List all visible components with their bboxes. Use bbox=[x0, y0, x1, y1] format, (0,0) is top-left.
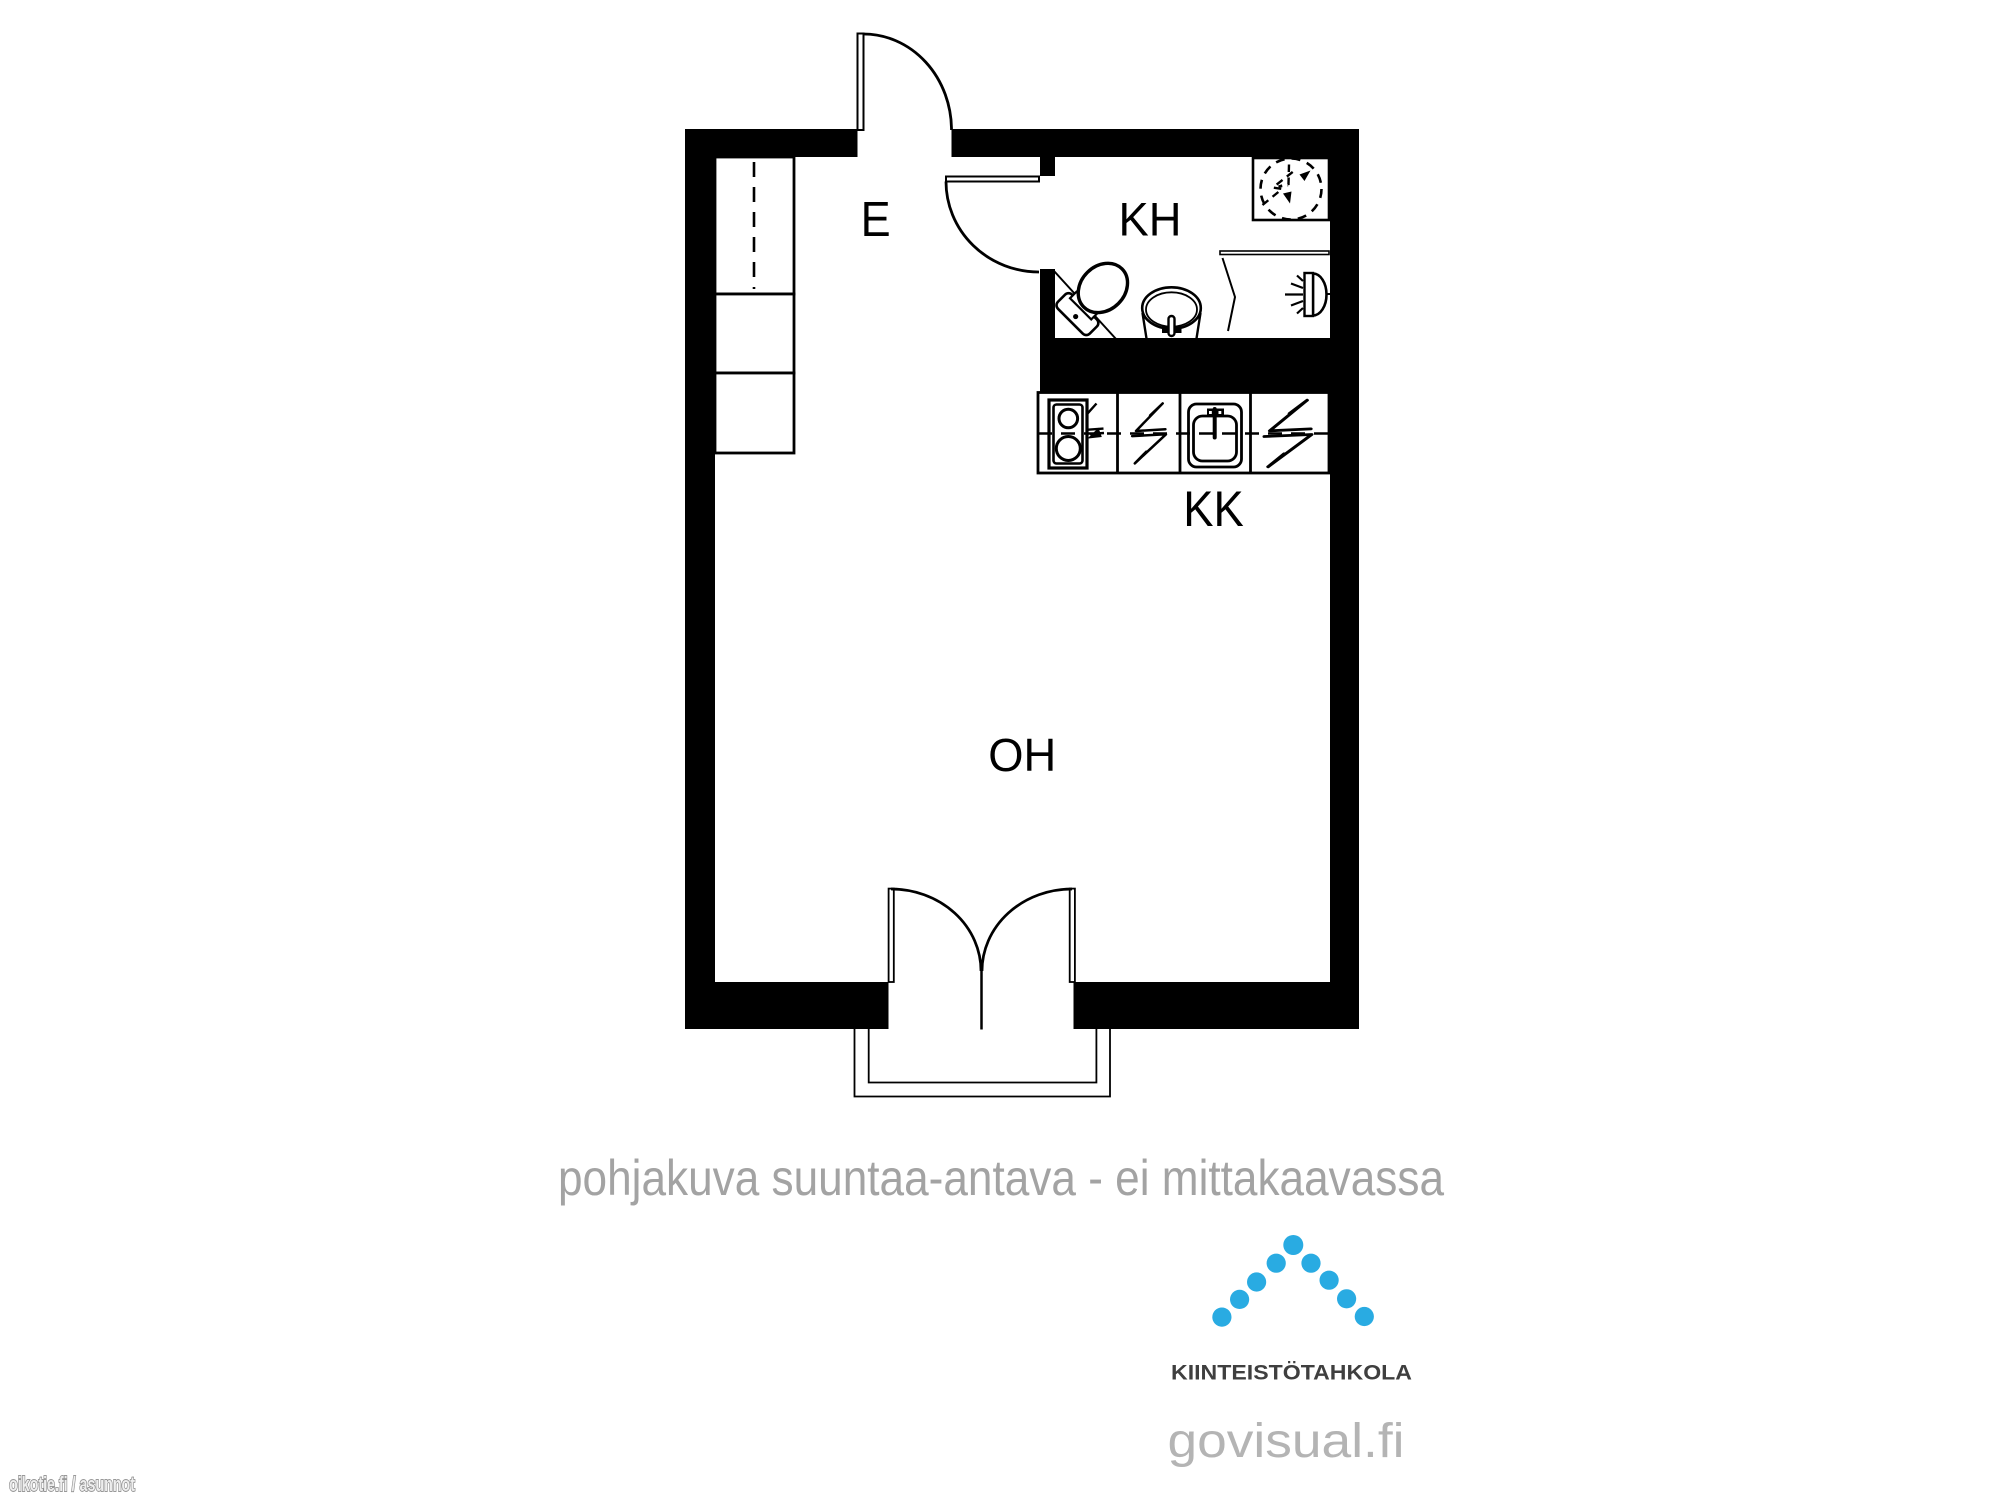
svg-text:pohjakuva suuntaa-antava - ei: pohjakuva suuntaa-antava - ei mittakaava… bbox=[558, 1150, 1444, 1206]
svg-text:KH: KH bbox=[1119, 193, 1182, 246]
svg-text:KK: KK bbox=[1183, 481, 1244, 537]
svg-text:oikotie.fi / asunnot: oikotie.fi / asunnot bbox=[9, 1474, 135, 1496]
svg-text:govisual.fi: govisual.fi bbox=[1168, 1414, 1405, 1468]
svg-text:OH: OH bbox=[988, 729, 1056, 781]
svg-text:KIINTEISTÖTAHKOLA: KIINTEISTÖTAHKOLA bbox=[1171, 1361, 1412, 1384]
svg-text:E: E bbox=[861, 193, 891, 247]
